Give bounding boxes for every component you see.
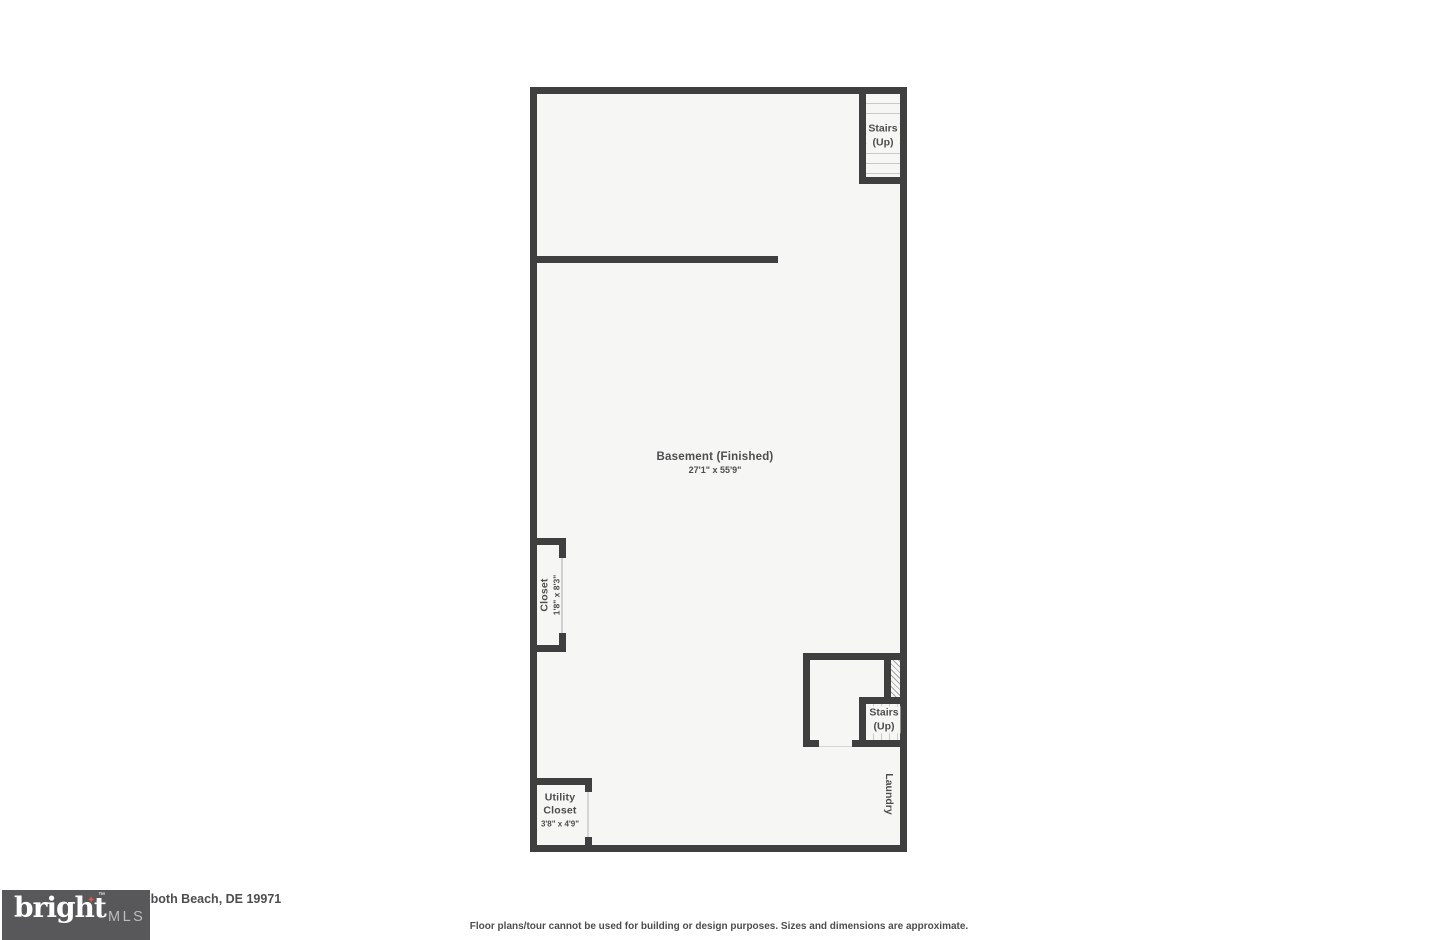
- mls-text: MLS: [108, 909, 145, 925]
- stairs-up-bottom-label: Stairs (Up): [867, 706, 900, 733]
- stairs-label-line2: (Up): [868, 136, 897, 150]
- utility-closet-label: Utility Closet 3'8" x 4'9": [541, 792, 579, 829]
- stairs-label-line2: (Up): [869, 720, 898, 734]
- basement-room-label: Basement (Finished) 27'1" x 55'9": [657, 451, 774, 475]
- basement-floor-plan: Stairs (Up) Basement (Finished) 27'1" x …: [530, 87, 907, 852]
- basement-room-name: Basement (Finished): [657, 451, 774, 463]
- utility-closet-name-line2: Closet: [541, 805, 579, 818]
- stair-room-left-wall: [803, 653, 810, 747]
- utility-closet-name-line1: Utility: [541, 792, 579, 805]
- stairs-up-top-label: Stairs (Up): [866, 122, 899, 149]
- closet-room-dimensions: 1'8" x 8'3": [552, 575, 562, 615]
- closet-room-label: Closet 1'8" x 8'3": [539, 575, 562, 615]
- utility-closet-dimensions: 3'8" x 4'9": [541, 819, 579, 828]
- bright-mls-logo: bright ✦ ™ MLS: [2, 890, 150, 940]
- basement-room-dimensions: 27'1" x 55'9": [657, 465, 774, 475]
- closet-room-name: Closet: [539, 575, 551, 615]
- utility-closet-door-leaf: [587, 792, 589, 837]
- property-address: oboth Beach, DE 19971: [143, 892, 281, 906]
- stairwell-hatched-void: [891, 660, 900, 697]
- laundry-room-label: Laundry: [883, 773, 895, 814]
- stair-room-top-wall: [803, 653, 900, 660]
- stairs-label-line1: Stairs: [868, 122, 897, 136]
- floor-plan-page: Stairs (Up) Basement (Finished) 27'1" x …: [0, 0, 1438, 940]
- interior-partition-wall: [537, 256, 778, 263]
- floor-plan-disclaimer: Floor plans/tour cannot be used for buil…: [0, 921, 1438, 932]
- star-icon: ✦: [87, 895, 95, 906]
- stair-room-door-opening: [819, 740, 852, 747]
- stairs-label-line1: Stairs: [869, 706, 898, 720]
- trademark-symbol: ™: [98, 892, 105, 899]
